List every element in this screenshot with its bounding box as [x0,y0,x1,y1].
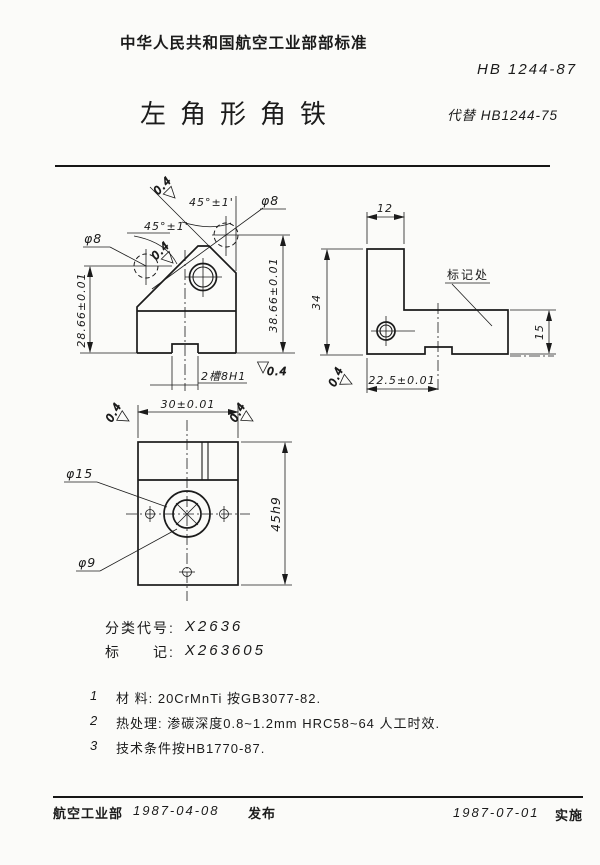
front-hole-top-label: φ8 [261,193,279,208]
note-number: 3 [90,738,116,757]
front-dim-right-label: 38.66±0.01 [267,257,280,332]
marking-place-label: 标记处 [447,268,489,282]
footer-issuer: 航空工业部 [53,803,123,822]
footer-impl-label: 实施 [555,805,583,824]
angle-dim-label: 45°±1' [189,196,234,209]
svg-text:0.4: 0.4 [149,239,173,263]
roughness-mark: 0.4 [258,362,288,378]
roughness-mark: 0.4 [227,400,258,430]
classification-code-label: 分类代号: [105,618,175,638]
note-row: 3 技术条件按HB1770-87. [90,738,265,757]
plan-dim-right-label: 45h9 [268,496,283,532]
side-dim-top-label: 12 [377,202,393,215]
classification-mark-row: 标 记: X263605 [105,642,266,662]
note-row: 1 材 料: 20CrMnTi 按GB3077-82. [90,688,321,707]
roughness-mark: 0.4 [151,174,182,205]
note-row: 2 热处理: 渗碳深度0.8~1.2mm HRC58~64 人工时效. [90,713,440,732]
classification-code-value: X2636 [185,618,243,638]
footer-release-date: 1987-04-08 [133,803,220,818]
standard-document-page: 中华人民共和国航空工业部部标准 HB 1244-87 左角形角铁 代替 HB12… [0,0,600,865]
side-dim-left-label: 34 [310,294,323,310]
bore-outer-label: φ15 [66,466,93,481]
angle-dim-label: 45°±1' [144,220,189,233]
footer-impl-date: 1987-07-01 [453,805,540,820]
classification-code-row: 分类代号: X2636 [105,618,243,638]
footer-release-label: 发布 [248,803,276,822]
note-number: 2 [90,713,116,732]
classification-mark-value: X263605 [185,642,266,662]
note-number: 1 [90,688,116,707]
classification-mark-label: 标 记: [105,642,175,662]
engineering-drawing: 28.66±0.01 38.66±0.01 φ8 φ8 45°±1' 45°±1… [0,0,600,865]
note-text: 技术条件按HB1770-87. [116,738,265,757]
side-dim-right-label: 15 [533,324,546,340]
svg-text:0.4: 0.4 [151,174,175,198]
front-dim-left-label: 28.66±0.01 [75,272,88,347]
bore-inner-label: φ9 [78,555,96,570]
front-hole-left-label: φ8 [84,231,102,246]
plan-dim-top-label: 30±0.01 [161,398,216,411]
slot-note-label: 2槽8H1 [201,370,246,383]
roughness-mark: 0.4 [103,400,134,430]
roughness-mark: 0.4 [326,365,356,394]
front-view: 28.66±0.01 38.66±0.01 φ8 φ8 45°±1' 45°±1… [75,174,295,391]
roughness-mark: 0.4 [149,239,180,270]
side-view: 12 34 15 22.5±0.01 0.4 标记处 [310,202,556,393]
side-dim-bottom-label: 22.5±0.01 [368,374,435,387]
footer-rule [53,796,583,798]
svg-text:0.4: 0.4 [267,365,288,378]
note-text: 材 料: 20CrMnTi 按GB3077-82. [116,688,321,707]
svg-text:0.4: 0.4 [326,365,346,389]
note-text: 热处理: 渗碳深度0.8~1.2mm HRC58~64 人工时效. [116,713,440,732]
plan-view: 30±0.01 0.4 0.4 45h9 φ15 φ9 [64,398,292,601]
